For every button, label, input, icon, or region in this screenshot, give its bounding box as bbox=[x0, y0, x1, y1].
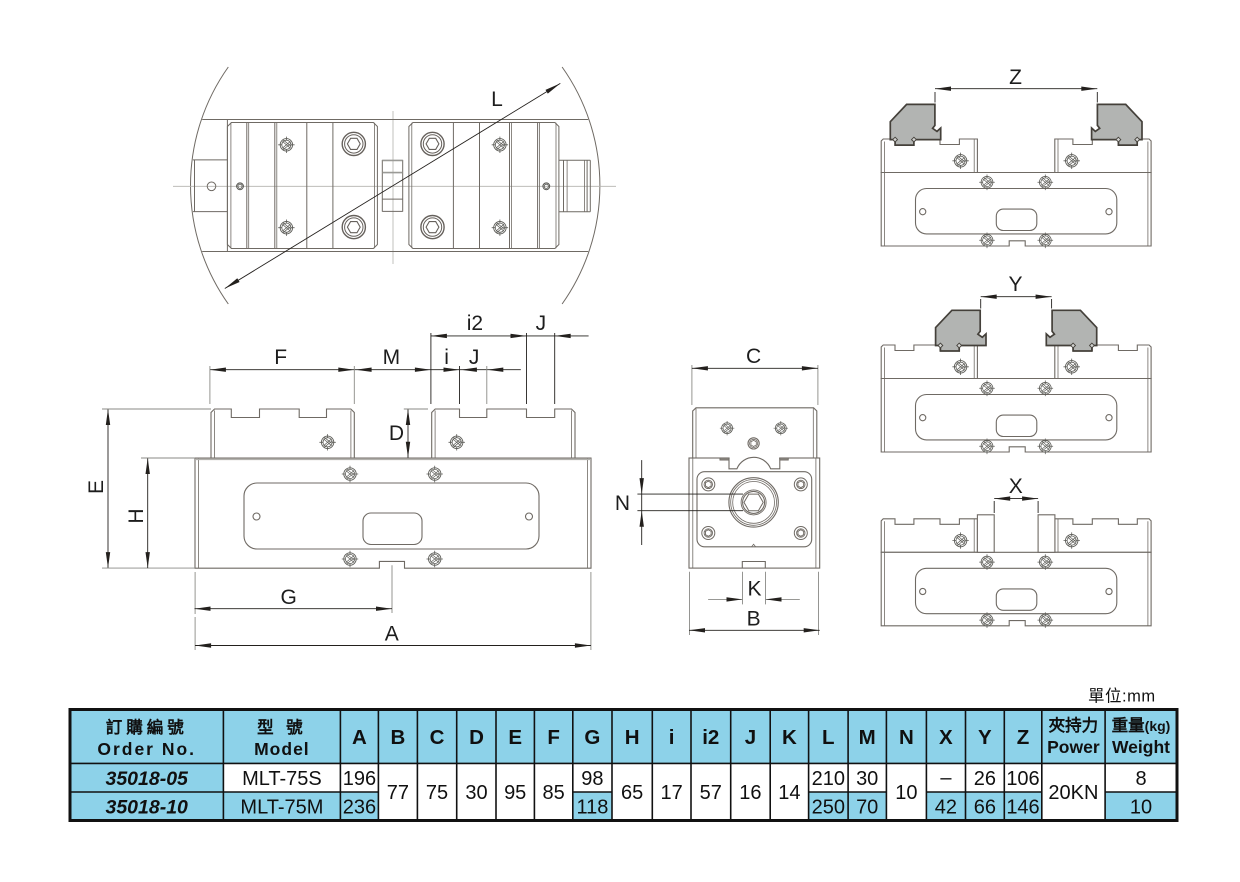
svg-text:F: F bbox=[274, 346, 287, 369]
svg-text:98: 98 bbox=[581, 768, 603, 790]
svg-text:A: A bbox=[385, 623, 399, 646]
svg-text:35018-05: 35018-05 bbox=[105, 768, 189, 790]
svg-text:–: – bbox=[940, 767, 952, 789]
svg-text:B: B bbox=[390, 726, 405, 749]
svg-text:L: L bbox=[491, 88, 503, 111]
svg-text:Y: Y bbox=[978, 726, 992, 749]
svg-text:20KN: 20KN bbox=[1048, 782, 1098, 804]
svg-text:E: E bbox=[85, 480, 108, 494]
svg-text:42: 42 bbox=[935, 797, 957, 819]
svg-text:F: F bbox=[547, 726, 560, 749]
svg-text:X: X bbox=[939, 726, 953, 749]
svg-text:Model: Model bbox=[254, 739, 310, 759]
svg-text:D: D bbox=[469, 726, 484, 749]
svg-text:210: 210 bbox=[812, 768, 845, 790]
svg-text:70: 70 bbox=[856, 797, 878, 819]
svg-text:Z: Z bbox=[1009, 66, 1022, 89]
svg-text:MLT-75M: MLT-75M bbox=[240, 797, 323, 819]
svg-text:C: C bbox=[430, 726, 445, 749]
svg-text:Weight: Weight bbox=[1112, 737, 1170, 757]
svg-text:M: M bbox=[859, 726, 876, 749]
svg-text:85: 85 bbox=[542, 782, 564, 804]
svg-text:66: 66 bbox=[974, 797, 996, 819]
svg-text:C: C bbox=[746, 345, 761, 368]
svg-text:Power: Power bbox=[1047, 737, 1100, 757]
svg-text:J: J bbox=[745, 726, 756, 749]
svg-text:Z: Z bbox=[1017, 726, 1030, 749]
svg-text:106: 106 bbox=[1006, 768, 1039, 790]
svg-text:30: 30 bbox=[856, 768, 878, 790]
svg-text:i: i bbox=[444, 346, 449, 369]
svg-text:D: D bbox=[389, 422, 404, 445]
svg-text:i2: i2 bbox=[702, 726, 719, 749]
svg-text:17: 17 bbox=[660, 782, 682, 804]
svg-text:X: X bbox=[1009, 475, 1023, 498]
svg-text:A: A bbox=[352, 726, 367, 749]
svg-text:8: 8 bbox=[1135, 768, 1146, 790]
svg-text:65: 65 bbox=[621, 782, 643, 804]
svg-text:26: 26 bbox=[974, 768, 996, 790]
svg-text:夾持力: 夾持力 bbox=[1049, 715, 1099, 735]
svg-text:B: B bbox=[747, 607, 761, 630]
svg-text:196: 196 bbox=[343, 768, 376, 790]
svg-text:146: 146 bbox=[1006, 797, 1039, 819]
svg-text:訂購編號: 訂購編號 bbox=[106, 717, 188, 737]
svg-text:L: L bbox=[822, 726, 835, 749]
svg-text:J: J bbox=[469, 346, 480, 369]
svg-text:G: G bbox=[281, 586, 297, 609]
svg-text:MLT-75S: MLT-75S bbox=[242, 768, 322, 790]
svg-text:10: 10 bbox=[1130, 797, 1152, 819]
svg-text:M: M bbox=[383, 346, 401, 369]
svg-text:16: 16 bbox=[739, 782, 761, 804]
svg-text:H: H bbox=[625, 726, 640, 749]
svg-text:236: 236 bbox=[343, 797, 376, 819]
svg-text:250: 250 bbox=[812, 797, 845, 819]
svg-text:型 號: 型 號 bbox=[257, 717, 307, 737]
svg-text:10: 10 bbox=[895, 782, 917, 804]
svg-text:30: 30 bbox=[465, 782, 487, 804]
svg-text:35018-10: 35018-10 bbox=[105, 797, 188, 819]
svg-text:J: J bbox=[536, 312, 547, 335]
svg-text:N: N bbox=[899, 726, 914, 749]
svg-text:重量(kg): 重量(kg) bbox=[1112, 715, 1171, 735]
svg-text:Y: Y bbox=[1008, 273, 1022, 296]
svg-text:i: i bbox=[669, 726, 675, 749]
svg-text:57: 57 bbox=[700, 782, 722, 804]
svg-text:N: N bbox=[615, 492, 630, 515]
svg-text:77: 77 bbox=[387, 782, 409, 804]
svg-text:14: 14 bbox=[778, 782, 800, 804]
svg-text:單位:mm: 單位:mm bbox=[1088, 687, 1156, 706]
svg-text:H: H bbox=[125, 508, 148, 523]
svg-text:Order No.: Order No. bbox=[97, 739, 196, 759]
svg-text:K: K bbox=[747, 578, 761, 601]
svg-text:118: 118 bbox=[576, 797, 608, 819]
svg-text:95: 95 bbox=[504, 782, 526, 804]
svg-text:E: E bbox=[508, 726, 522, 749]
svg-text:K: K bbox=[782, 726, 797, 749]
svg-text:i2: i2 bbox=[467, 312, 483, 335]
svg-text:75: 75 bbox=[426, 782, 448, 804]
svg-text:G: G bbox=[584, 726, 600, 749]
